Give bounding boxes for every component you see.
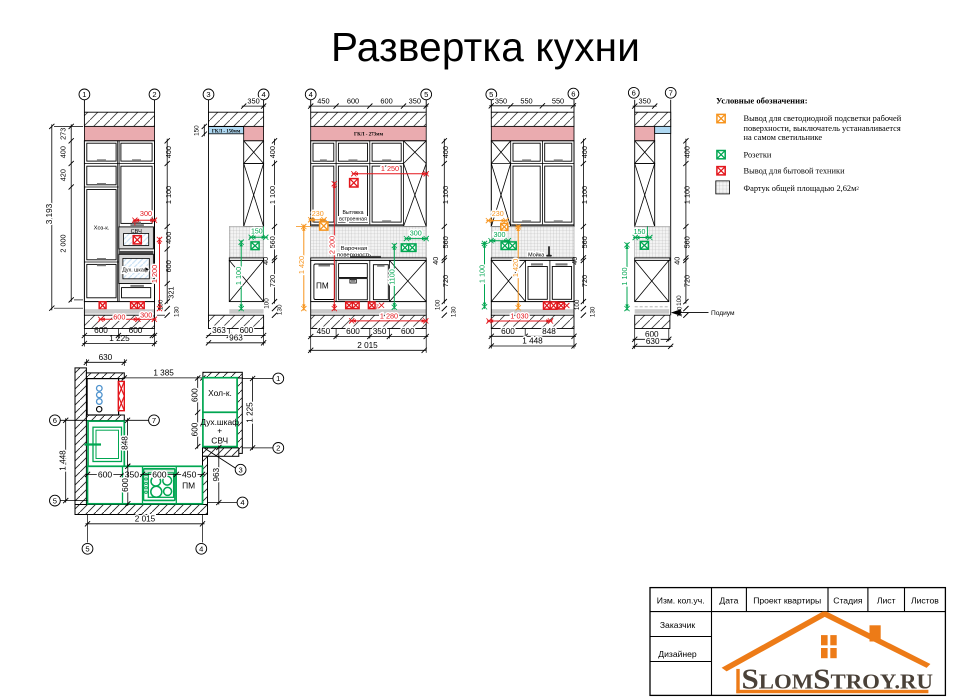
svg-text:Вытяжка: Вытяжка <box>342 210 363 216</box>
svg-text:720: 720 <box>441 275 450 287</box>
svg-text:400: 400 <box>268 146 277 158</box>
svg-text:321: 321 <box>167 287 176 299</box>
svg-text:963: 963 <box>212 467 221 481</box>
svg-text:560: 560 <box>441 236 450 248</box>
svg-text:150: 150 <box>193 125 200 136</box>
svg-text:450: 450 <box>317 327 331 336</box>
svg-text:273: 273 <box>59 128 68 140</box>
svg-text:7: 7 <box>669 89 673 98</box>
svg-text:Лист: Лист <box>877 595 896 605</box>
svg-text:848: 848 <box>121 436 130 450</box>
svg-text:450: 450 <box>317 97 329 106</box>
svg-text:600: 600 <box>129 326 143 335</box>
svg-text:2 015: 2 015 <box>135 514 156 523</box>
svg-text:Условные обозначения:: Условные обозначения: <box>716 95 808 105</box>
svg-text:встроенная: встроенная <box>339 217 367 223</box>
svg-text:+: + <box>217 425 222 435</box>
svg-text:600: 600 <box>380 97 392 106</box>
svg-text:1 225: 1 225 <box>246 402 255 423</box>
svg-text:400: 400 <box>683 146 692 158</box>
svg-text:150: 150 <box>634 229 646 236</box>
svg-text:5: 5 <box>53 496 57 505</box>
svg-text:720: 720 <box>683 275 692 287</box>
svg-text:5: 5 <box>489 90 493 99</box>
svg-text:Хол-к.: Хол-к. <box>208 388 232 398</box>
svg-text:400: 400 <box>580 146 589 158</box>
svg-text:350: 350 <box>639 97 651 106</box>
svg-text:300: 300 <box>140 209 152 218</box>
svg-text:300: 300 <box>494 230 506 239</box>
svg-text:Варочная: Варочная <box>341 246 367 252</box>
svg-text:50: 50 <box>374 304 380 310</box>
svg-text:1 100: 1 100 <box>478 265 487 283</box>
svg-text:630: 630 <box>99 353 113 362</box>
svg-text:Дизайнер: Дизайнер <box>658 649 697 659</box>
svg-text:Листов: Листов <box>911 595 939 605</box>
svg-text:Развертка кухни: Развертка кухни <box>331 24 640 70</box>
svg-text:300: 300 <box>410 229 422 238</box>
svg-text:2 015: 2 015 <box>357 341 378 350</box>
svg-text:600: 600 <box>152 469 167 479</box>
svg-text:Хоз-к.: Хоз-к. <box>94 226 110 232</box>
svg-text:600: 600 <box>98 469 113 479</box>
svg-text:150: 150 <box>251 228 263 235</box>
svg-text:СВЧ: СВЧ <box>211 435 228 445</box>
svg-text:1: 1 <box>276 374 280 383</box>
svg-text:40: 40 <box>673 257 682 265</box>
svg-text:560: 560 <box>580 236 589 248</box>
svg-text:600: 600 <box>347 97 359 106</box>
svg-text:Подиум: Подиум <box>711 310 735 317</box>
svg-text:720: 720 <box>268 275 277 287</box>
svg-text:1 448: 1 448 <box>59 450 68 471</box>
svg-text:2: 2 <box>152 90 156 99</box>
svg-text:600: 600 <box>401 327 415 336</box>
svg-text:Фартук общей площадью 2,62м2: Фартук общей площадью 2,62м2 <box>744 184 860 193</box>
svg-text:ГКЛ - 150мм: ГКЛ - 150мм <box>212 129 241 134</box>
svg-text:600: 600 <box>121 478 130 492</box>
svg-text:560: 560 <box>268 236 277 248</box>
svg-text:1 100: 1 100 <box>620 267 629 285</box>
svg-text:40: 40 <box>431 257 440 265</box>
svg-text:ПМ: ПМ <box>316 282 329 291</box>
svg-text:на самом светильнике: на самом светильнике <box>744 133 823 142</box>
svg-text:350: 350 <box>373 327 387 336</box>
svg-text:3: 3 <box>206 90 210 99</box>
svg-text:5: 5 <box>424 90 428 99</box>
svg-text:600: 600 <box>164 260 173 272</box>
svg-text:100: 100 <box>676 295 683 306</box>
svg-text:130: 130 <box>173 306 180 317</box>
svg-text:630: 630 <box>646 337 660 346</box>
svg-text:1 100: 1 100 <box>164 186 173 204</box>
svg-text:поверхности, выключатель устан: поверхности, выключатель устанавливается <box>744 124 901 133</box>
svg-text:6: 6 <box>571 89 575 98</box>
svg-text:400: 400 <box>59 146 68 158</box>
svg-text:550: 550 <box>552 96 564 105</box>
svg-text:600: 600 <box>191 422 200 436</box>
svg-text:350: 350 <box>247 97 259 106</box>
svg-text:1 100: 1 100 <box>441 186 450 204</box>
svg-text:350: 350 <box>409 97 421 106</box>
svg-text:1: 1 <box>82 90 86 99</box>
svg-text:230: 230 <box>312 209 324 218</box>
svg-text:600: 600 <box>94 326 108 335</box>
svg-text:400: 400 <box>164 232 173 244</box>
svg-text:1 250: 1 250 <box>381 164 399 173</box>
svg-text:4: 4 <box>261 90 265 99</box>
svg-text:350: 350 <box>125 469 140 479</box>
svg-text:1 100: 1 100 <box>268 186 277 204</box>
svg-text:1 200: 1 200 <box>150 265 159 283</box>
svg-text:848: 848 <box>542 327 556 336</box>
svg-text:963: 963 <box>229 334 243 343</box>
svg-text:3: 3 <box>238 465 242 474</box>
svg-text:4: 4 <box>240 498 244 507</box>
svg-text:130: 130 <box>676 306 683 317</box>
svg-text:2: 2 <box>276 444 280 453</box>
svg-text:600: 600 <box>191 388 200 402</box>
svg-text:363: 363 <box>212 326 226 335</box>
svg-text:Изм. кол.уч.: Изм. кол.уч. <box>657 595 705 605</box>
svg-text:2 000: 2 000 <box>59 234 68 252</box>
svg-text:4: 4 <box>309 90 313 99</box>
svg-text:300: 300 <box>140 311 152 320</box>
svg-text:1 420: 1 420 <box>511 259 520 277</box>
svg-text:1 420: 1 420 <box>297 256 306 274</box>
svg-text:ПМ: ПМ <box>182 481 195 491</box>
svg-text:1 225: 1 225 <box>109 334 130 343</box>
svg-text:420: 420 <box>59 169 68 181</box>
svg-text:600: 600 <box>113 312 125 321</box>
svg-text:1 100: 1 100 <box>234 267 243 285</box>
svg-text:560: 560 <box>683 236 692 248</box>
svg-text:5: 5 <box>85 545 89 554</box>
svg-text:400: 400 <box>164 146 173 158</box>
svg-text:1 100: 1 100 <box>580 186 589 204</box>
svg-text:4: 4 <box>199 545 203 554</box>
svg-text:3 193: 3 193 <box>45 203 54 224</box>
svg-text:130: 130 <box>277 304 284 315</box>
svg-text:40: 40 <box>261 257 270 265</box>
svg-text:1 385: 1 385 <box>153 368 174 377</box>
svg-text:6: 6 <box>53 416 57 425</box>
svg-text:550: 550 <box>520 96 532 105</box>
svg-text:SLOMSTROY.RU: SLOMSTROY.RU <box>742 665 934 696</box>
svg-text:Вывод для светодиодной подсвет: Вывод для светодиодной подсветки рабочей <box>744 114 902 123</box>
svg-text:100: 100 <box>574 299 581 310</box>
svg-text:Розетки: Розетки <box>744 151 772 160</box>
svg-text:130: 130 <box>451 306 458 317</box>
svg-text:1 280: 1 280 <box>380 311 398 320</box>
svg-text:2 200: 2 200 <box>327 236 336 254</box>
svg-text:Вывод для бытовой техники: Вывод для бытовой техники <box>744 167 846 176</box>
svg-text:1100: 1100 <box>387 269 396 285</box>
svg-text:7: 7 <box>152 416 156 425</box>
svg-text:100: 100 <box>435 299 442 310</box>
svg-text:40: 40 <box>570 257 579 265</box>
svg-text:450: 450 <box>182 469 197 479</box>
svg-text:400: 400 <box>441 146 450 158</box>
svg-text:Заказчик: Заказчик <box>660 620 696 630</box>
svg-text:Стадия: Стадия <box>833 595 863 605</box>
svg-text:350: 350 <box>495 96 507 105</box>
svg-text:230: 230 <box>492 209 504 218</box>
svg-text:100: 100 <box>263 298 270 309</box>
svg-text:100: 100 <box>158 299 165 310</box>
svg-text:Проект квартиры: Проект квартиры <box>753 595 821 605</box>
svg-text:130: 130 <box>590 306 597 317</box>
svg-text:Дух. шкаф: Дух. шкаф <box>122 267 149 273</box>
svg-text:600: 600 <box>501 327 515 336</box>
svg-text:1 030: 1 030 <box>510 312 528 321</box>
svg-text:1 100: 1 100 <box>683 186 692 204</box>
svg-text:1 448: 1 448 <box>522 337 543 346</box>
svg-text:Дата: Дата <box>719 595 738 605</box>
svg-text:6: 6 <box>632 89 636 98</box>
svg-text:ГКЛ - 273мм: ГКЛ - 273мм <box>354 132 384 137</box>
svg-text:600: 600 <box>346 327 360 336</box>
svg-text:720: 720 <box>580 275 589 287</box>
